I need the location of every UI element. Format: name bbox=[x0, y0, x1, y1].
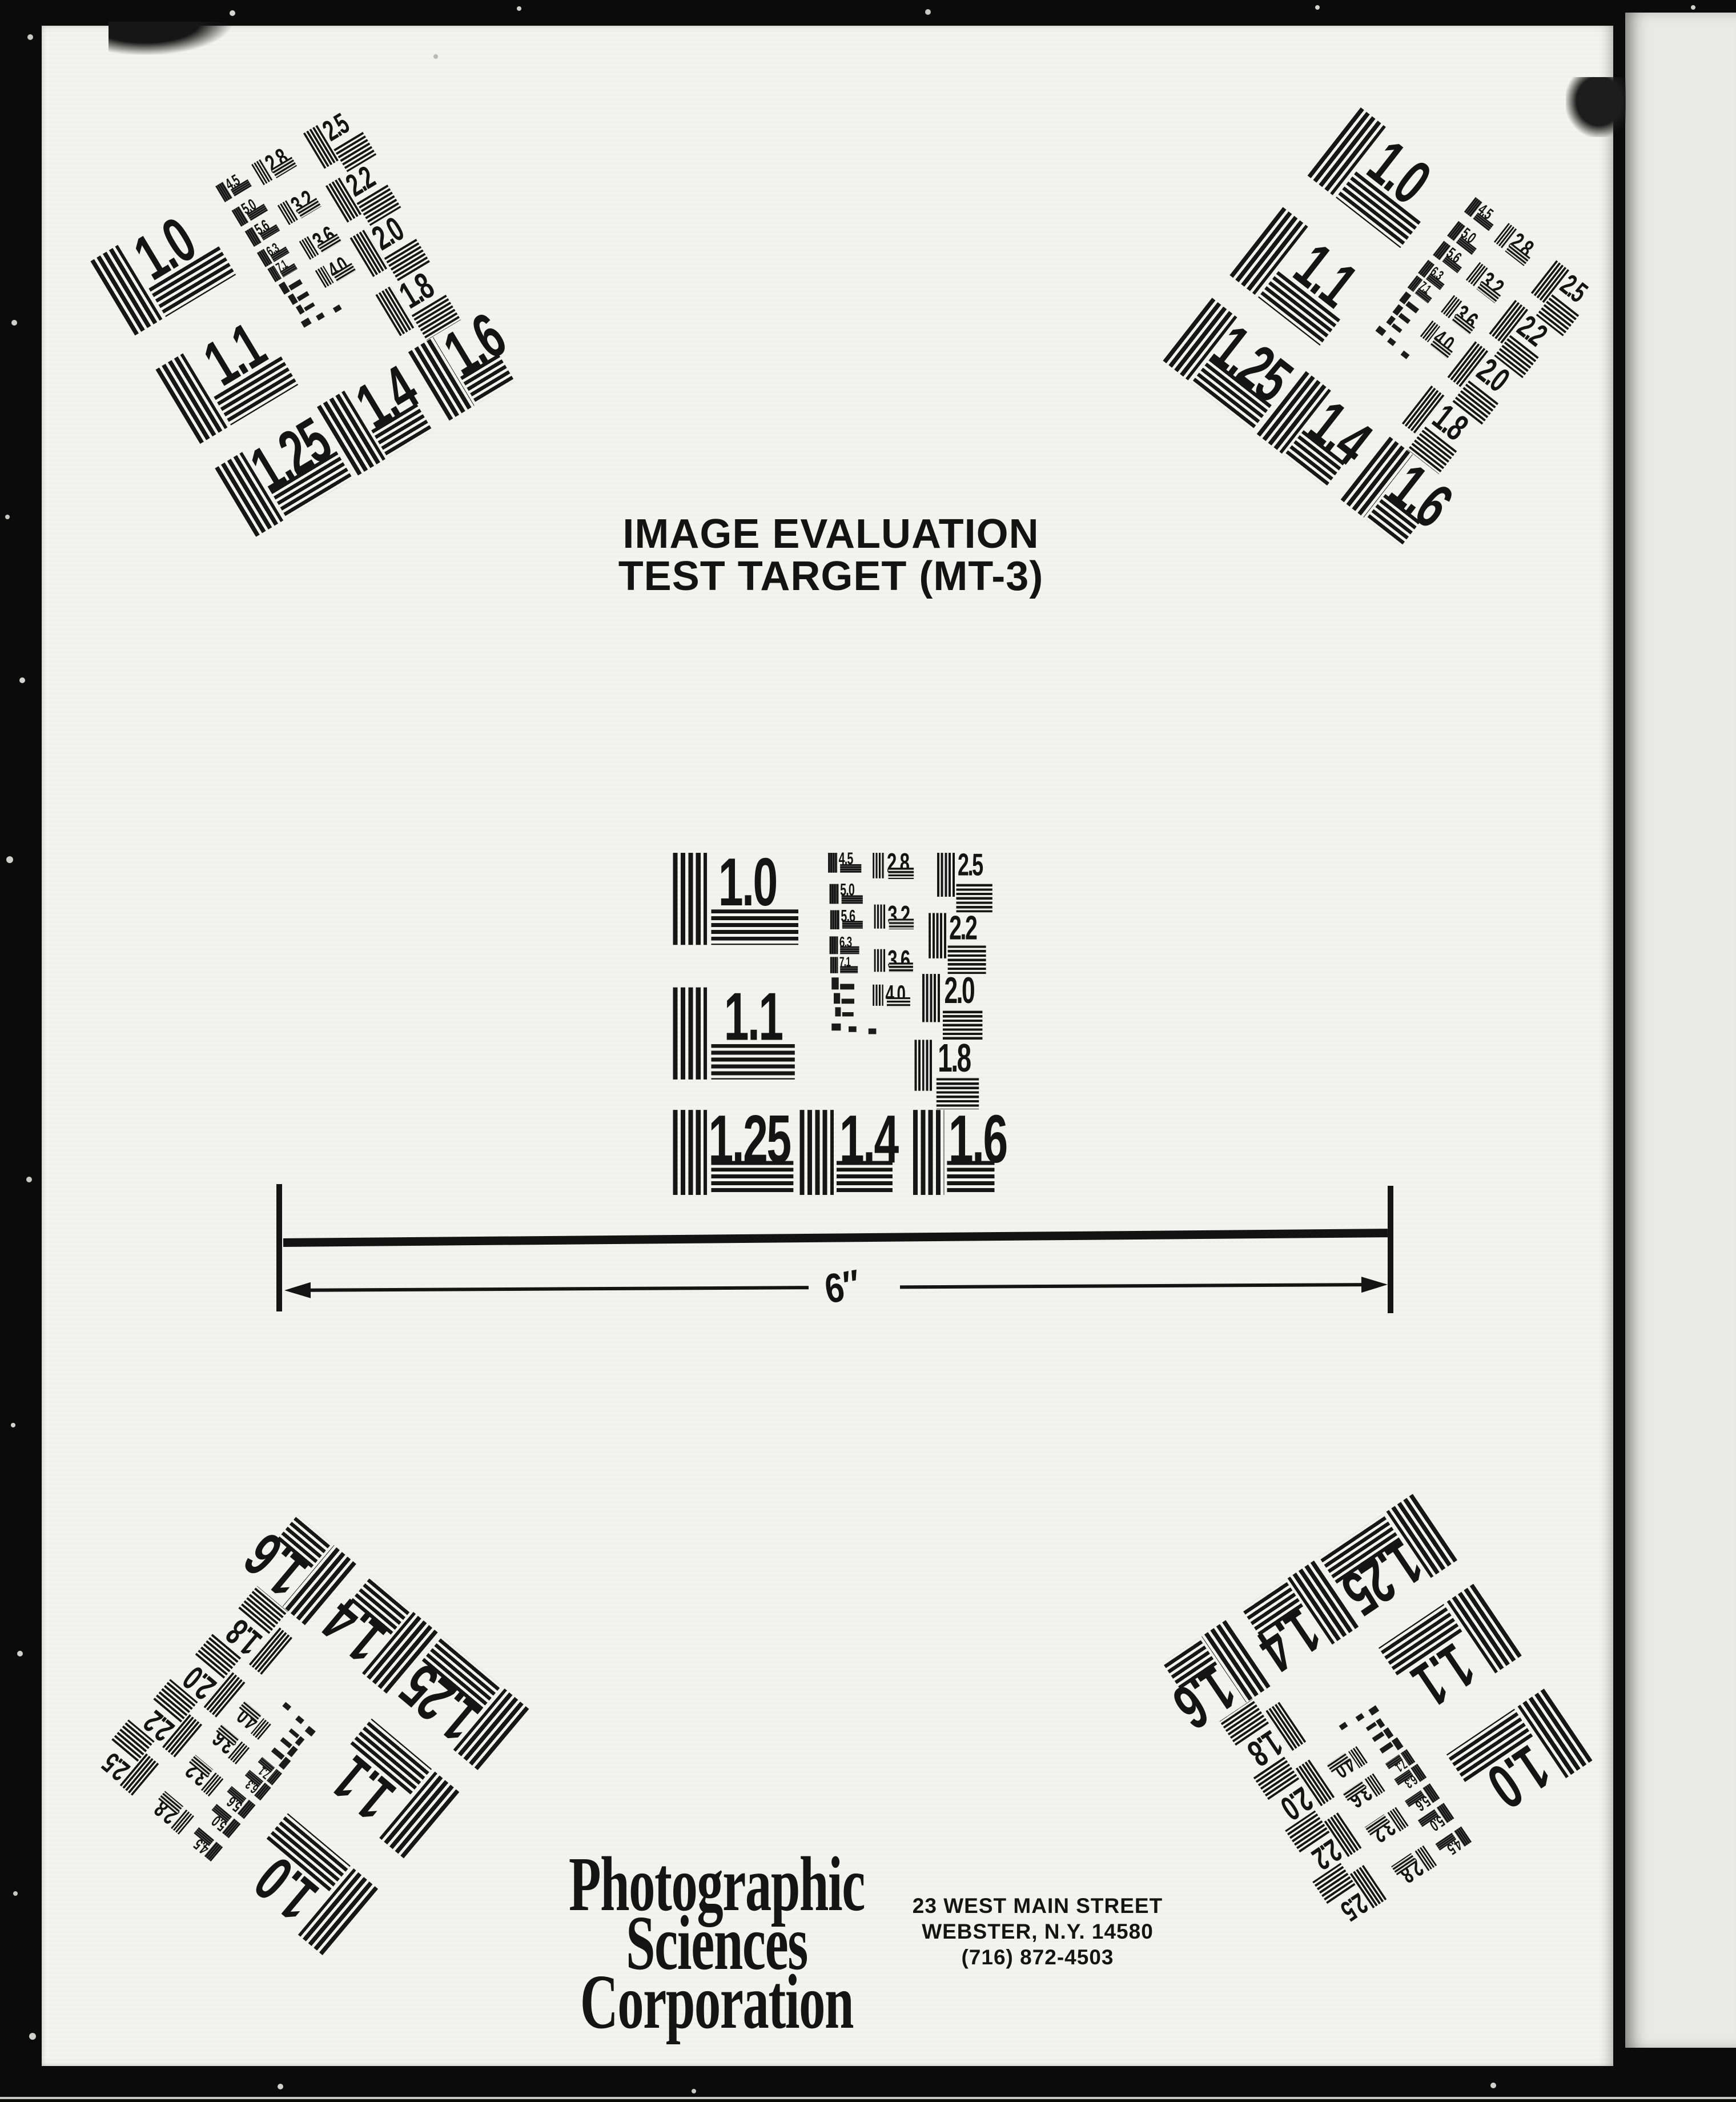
resolution-number: 2.2 bbox=[949, 912, 976, 946]
target-element-2-2: 2.2 bbox=[929, 912, 988, 977]
arrowhead-right-icon bbox=[1361, 1277, 1388, 1293]
vertical-bars bbox=[1392, 1737, 1404, 1750]
tiny-target-element bbox=[831, 976, 855, 990]
horizontal-bars bbox=[842, 921, 863, 929]
vertical-bars bbox=[830, 957, 838, 973]
target-element-3-2: 3.2 bbox=[180, 1754, 224, 1796]
horizontal-bars bbox=[842, 895, 863, 904]
tiny-target-element bbox=[834, 992, 855, 1004]
speck bbox=[301, 318, 312, 328]
resolution-number: 2.0 bbox=[944, 973, 974, 1009]
horizontal-bars bbox=[304, 302, 315, 311]
vertical-bars bbox=[937, 853, 955, 897]
target-element-4-5: 4.5 bbox=[828, 853, 863, 874]
vertical-bars bbox=[834, 993, 840, 1004]
target-element-1-6: 1.6 bbox=[913, 1110, 995, 1195]
horizontal-bars bbox=[840, 984, 854, 989]
organization-name: Photographic Sciences Corporation bbox=[499, 1855, 934, 2032]
speck bbox=[316, 312, 325, 321]
target-element-1-8: 1.8 bbox=[914, 1038, 982, 1113]
vertical-bars bbox=[830, 884, 839, 904]
speck bbox=[831, 1024, 841, 1030]
vertical-bars bbox=[279, 282, 290, 295]
vertical-bars bbox=[874, 949, 886, 972]
speck bbox=[305, 1726, 316, 1737]
horizontal-bars bbox=[840, 864, 861, 873]
speck bbox=[282, 1702, 291, 1711]
speck bbox=[333, 304, 342, 313]
paper-edge-strip bbox=[1625, 13, 1736, 2048]
vertical-bars bbox=[673, 1110, 708, 1195]
address-line-3: (716) 872-4503 bbox=[913, 1944, 1163, 1970]
target-element-3-2: 3.2 bbox=[1465, 262, 1509, 304]
target-element-3-2: 3.2 bbox=[1364, 1806, 1409, 1847]
target-element-4-0: 4.0 bbox=[1326, 1744, 1368, 1782]
resolution-number: 1.1 bbox=[724, 983, 782, 1051]
tiny-target-element bbox=[1372, 326, 1414, 362]
vertical-bars bbox=[830, 910, 839, 929]
film-scan-background: { "title": { "line1": "IMAGE EVALUATION"… bbox=[0, 0, 1736, 2102]
corner-smudge bbox=[1566, 77, 1626, 137]
horizontal-bars bbox=[840, 946, 859, 954]
vertical-bars bbox=[799, 1110, 834, 1195]
horizontal-bars bbox=[937, 1078, 979, 1109]
vertical-bars bbox=[673, 853, 708, 945]
horizontal-bars bbox=[711, 1044, 794, 1080]
speck bbox=[1339, 1722, 1348, 1730]
corner-smudge bbox=[108, 22, 231, 55]
horizontal-bars bbox=[889, 918, 914, 929]
horizontal-bars bbox=[1366, 1722, 1377, 1731]
horizontal-bars bbox=[888, 868, 914, 879]
vertical-bars bbox=[828, 853, 837, 873]
target-element-4-0: 4.0 bbox=[873, 985, 910, 1009]
target-element-1-4: 1.4 bbox=[799, 1110, 892, 1195]
tiny-target-element bbox=[831, 1024, 878, 1036]
target-element-5-0: 5.0 bbox=[830, 884, 865, 905]
horizontal-bars bbox=[948, 945, 986, 974]
vertical-bars bbox=[874, 905, 886, 929]
target-element-6-3: 6.3 bbox=[830, 936, 862, 955]
resolution-number: 2.5 bbox=[958, 850, 982, 881]
horizontal-bars bbox=[289, 1728, 300, 1738]
speck bbox=[1387, 338, 1396, 346]
target-element-3-2: 3.2 bbox=[874, 905, 914, 930]
vertical-bars bbox=[1376, 1718, 1385, 1728]
speck bbox=[1401, 351, 1410, 359]
ruler-bar bbox=[283, 1229, 1388, 1247]
vertical-bars bbox=[1383, 1727, 1393, 1739]
target-element-1-0: 1.0 bbox=[673, 853, 798, 945]
tiny-target-element bbox=[278, 1699, 319, 1736]
address-line-2: WEBSTER, N.Y. 14580 bbox=[913, 1919, 1163, 1944]
target-element-7-1: 7.1 bbox=[830, 957, 859, 974]
vertical-bars bbox=[835, 1007, 841, 1016]
vertical-bars bbox=[296, 304, 305, 315]
target-element-3-2: 3.2 bbox=[278, 186, 322, 226]
org-line-3: Corporation bbox=[569, 1973, 865, 2032]
speck bbox=[1368, 1705, 1379, 1715]
vertical-bars bbox=[873, 985, 883, 1006]
horizontal-bars bbox=[842, 1012, 854, 1016]
scan-edge-line bbox=[0, 2097, 1736, 2099]
organization-name-text: Photographic Sciences Corporation bbox=[569, 1855, 865, 2032]
target-element-5-6: 5.6 bbox=[830, 910, 865, 931]
vertical-bars bbox=[873, 853, 885, 878]
speck bbox=[869, 1029, 877, 1034]
speck bbox=[1356, 1713, 1365, 1722]
target-element-1-1: 1.1 bbox=[673, 988, 798, 1080]
horizontal-bars bbox=[957, 884, 992, 913]
title-line-2: TEST TARGET (MT-3) bbox=[618, 555, 1044, 597]
resolution-number: 1.8 bbox=[938, 1038, 970, 1078]
arrow-segment bbox=[900, 1283, 1366, 1289]
organization-address: 23 WEST MAIN STREET WEBSTER, N.Y. 14580 … bbox=[913, 1893, 1163, 1970]
vertical-bars bbox=[913, 1110, 945, 1195]
arrow-segment bbox=[307, 1286, 809, 1292]
resolution-test-target: 1.0 1.1 1.25 1.4 1.6 2.5 bbox=[673, 853, 995, 1195]
vertical-bars bbox=[914, 1040, 933, 1090]
horizontal-bars bbox=[887, 997, 910, 1007]
title-line-1: IMAGE EVALUATION bbox=[618, 513, 1044, 555]
page-title: IMAGE EVALUATION TEST TARGET (MT-3) bbox=[618, 513, 1044, 597]
horizontal-bars bbox=[711, 909, 798, 945]
target-element-2-0: 2.0 bbox=[922, 974, 984, 1045]
vertical-bars bbox=[673, 988, 708, 1080]
target-element-1-25: 1.25 bbox=[673, 1110, 795, 1195]
horizontal-bars bbox=[889, 962, 913, 972]
vertical-bars bbox=[831, 977, 838, 989]
ruler-endbar-left bbox=[276, 1184, 282, 1311]
horizontal-bars bbox=[840, 966, 858, 973]
speck bbox=[849, 1026, 857, 1032]
target-element-3-6: 3.6 bbox=[874, 949, 913, 973]
vertical-bars bbox=[288, 294, 298, 305]
vertical-bars bbox=[929, 913, 946, 958]
tiny-target-element bbox=[835, 1006, 853, 1017]
horizontal-bars bbox=[1392, 323, 1403, 333]
vertical-bars bbox=[922, 974, 941, 1022]
speck bbox=[1375, 326, 1386, 336]
target-element-4-0: 4.0 bbox=[315, 252, 357, 290]
resolution-number: 1.0 bbox=[718, 849, 777, 917]
vertical-bars bbox=[830, 936, 838, 954]
address-line-1: 23 WEST MAIN STREET bbox=[913, 1893, 1163, 1919]
speck bbox=[295, 1715, 304, 1724]
film-noise-specks bbox=[0, 0, 3, 3]
ruler-endbar-right bbox=[1388, 1186, 1393, 1313]
target-element-2-8: 2.8 bbox=[873, 853, 914, 880]
horizontal-bars bbox=[842, 998, 854, 1004]
